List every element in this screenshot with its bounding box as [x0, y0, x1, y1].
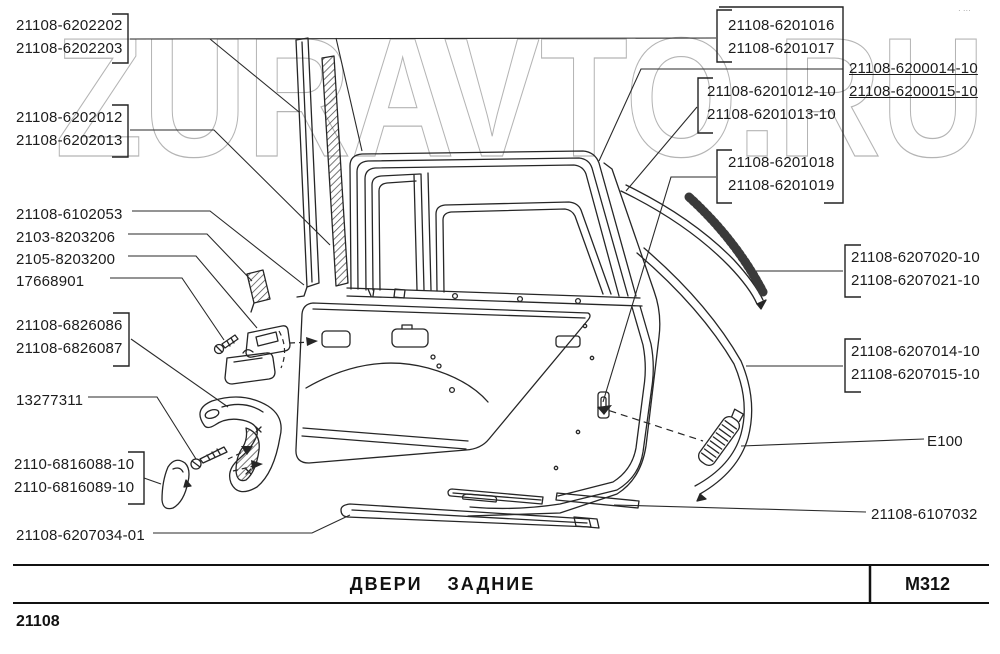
part-label-6207020: 21108-6207020-10 21108-6207021-10	[851, 246, 980, 292]
part-label-6202202: 21108-6202202 21108-6202203	[16, 14, 123, 60]
clip-part	[247, 270, 270, 303]
part-label-6102053: 21108-6102053	[16, 203, 123, 226]
part-label-6816088: 2110-6816088-10 2110-6816089-10	[14, 453, 134, 499]
part-label-6207034: 21108-6207034-01	[16, 524, 145, 547]
part-label-6201018: 21108-6201018 21108-6201019	[728, 151, 835, 197]
part-label-17668901: 17668901	[16, 270, 84, 293]
part-label-13277311: 13277311	[16, 389, 83, 412]
corner-smudge: · ···	[958, 6, 971, 15]
weatherstrip-hatched	[689, 197, 763, 292]
part-label-2103-8203206: 2103-8203206	[16, 226, 115, 249]
part-label-6201016: 21108-6201016 21108-6201017	[728, 14, 835, 60]
part-label-e100: E100	[927, 430, 963, 453]
part-label-6200014: 21108-6200014-10 21108-6200015-10	[849, 57, 978, 103]
page-title: ДВЕРИ ЗАДНИЕ	[15, 566, 870, 603]
watermark-outline: ZURAVTO.RU	[55, 3, 985, 193]
part-label-6207014: 21108-6207014-10 21108-6207015-10	[851, 340, 980, 386]
part-label-6826086: 21108-6826086 21108-6826087	[16, 314, 123, 360]
svg-text:ZURAVTO.RU: ZURAVTO.RU	[55, 3, 985, 193]
sill-moulding	[341, 504, 591, 527]
sheet-code: M312	[870, 566, 985, 603]
part-label-6202012: 21108-6202012 21108-6202013	[16, 106, 123, 152]
part-label-2105-8203200: 2105-8203200	[16, 248, 115, 271]
catalog-page: ZURAVTO.RU	[0, 0, 1000, 654]
part-label-6107032: 21108-6107032	[871, 503, 978, 526]
part-label-6201012: 21108-6201012-10 21108-6201013-10	[707, 80, 836, 126]
model-number: 21108	[16, 613, 60, 631]
